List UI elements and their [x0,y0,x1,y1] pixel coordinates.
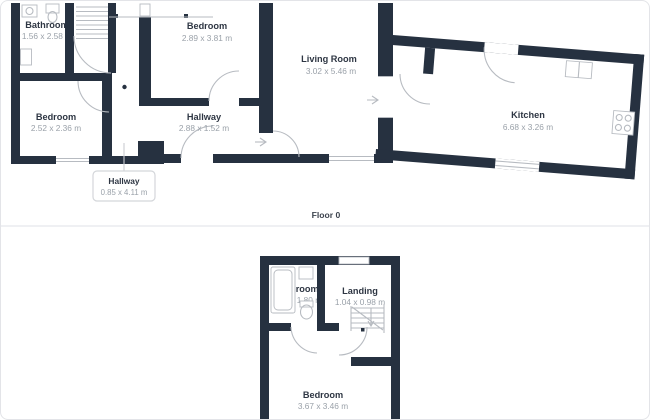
floorplan-card: Bathroom 1.56 x 2.58 m [0,0,650,420]
floor0-label: Floor 0 [312,210,341,220]
room-dims-bedroom-left: 2.52 x 2.36 m [31,123,81,133]
room-label-bedroom-left: Bedroom [36,112,76,122]
kitchen-block [375,34,644,179]
room-label-bedroom-f1: Bedroom [303,390,343,400]
callout-hallway-dims: 0.85 x 4.11 m [101,188,148,197]
floor0-room-labels-under: Bathroom 1.56 x 2.58 m [22,20,72,41]
room-dims-bedroom-f1: 3.67 x 3.46 m [298,401,348,411]
room-dims-bedroom-mid: 2.89 x 3.81 m [182,33,232,43]
room-dims-landing: 1.04 x 0.98 m [335,297,385,307]
room-dims-bathroom-f0: 1.56 x 2.58 m [22,31,72,41]
floor1-door-arcs [291,327,367,355]
room-dims-hallway-mid: 2.88 x 1.52 m [179,123,229,133]
room-label-living-room: Living Room [301,54,357,64]
kitchen-sink-icon [565,61,592,79]
kitchen-stove-icon [612,111,635,136]
floor0-plan: Bathroom 1.56 x 2.58 m [11,3,644,220]
room-label-hallway-mid: Hallway [187,112,222,122]
room-label-bedroom-mid: Bedroom [187,21,227,31]
room-label-landing: Landing [342,286,378,296]
room-dims-living-room: 3.02 x 5.46 m [306,66,356,76]
floor-plan-drawing: Bathroom 1.56 x 2.58 m [1,1,650,420]
room-label-bathroom-f0: Bathroom [25,20,68,30]
floor1-plan: Bathroom 1.60 x 1.80 m Landing 1.04 x 0.… [260,256,400,420]
room-label-kitchen: Kitchen [511,110,545,120]
callout-hallway-name: Hallway [108,176,140,186]
room-dims-kitchen: 6.68 x 3.26 m [503,122,553,132]
floor0-door-arcs [74,36,430,158]
floor1-room-labels: Bedroom 3.67 x 3.46 m [298,390,348,411]
